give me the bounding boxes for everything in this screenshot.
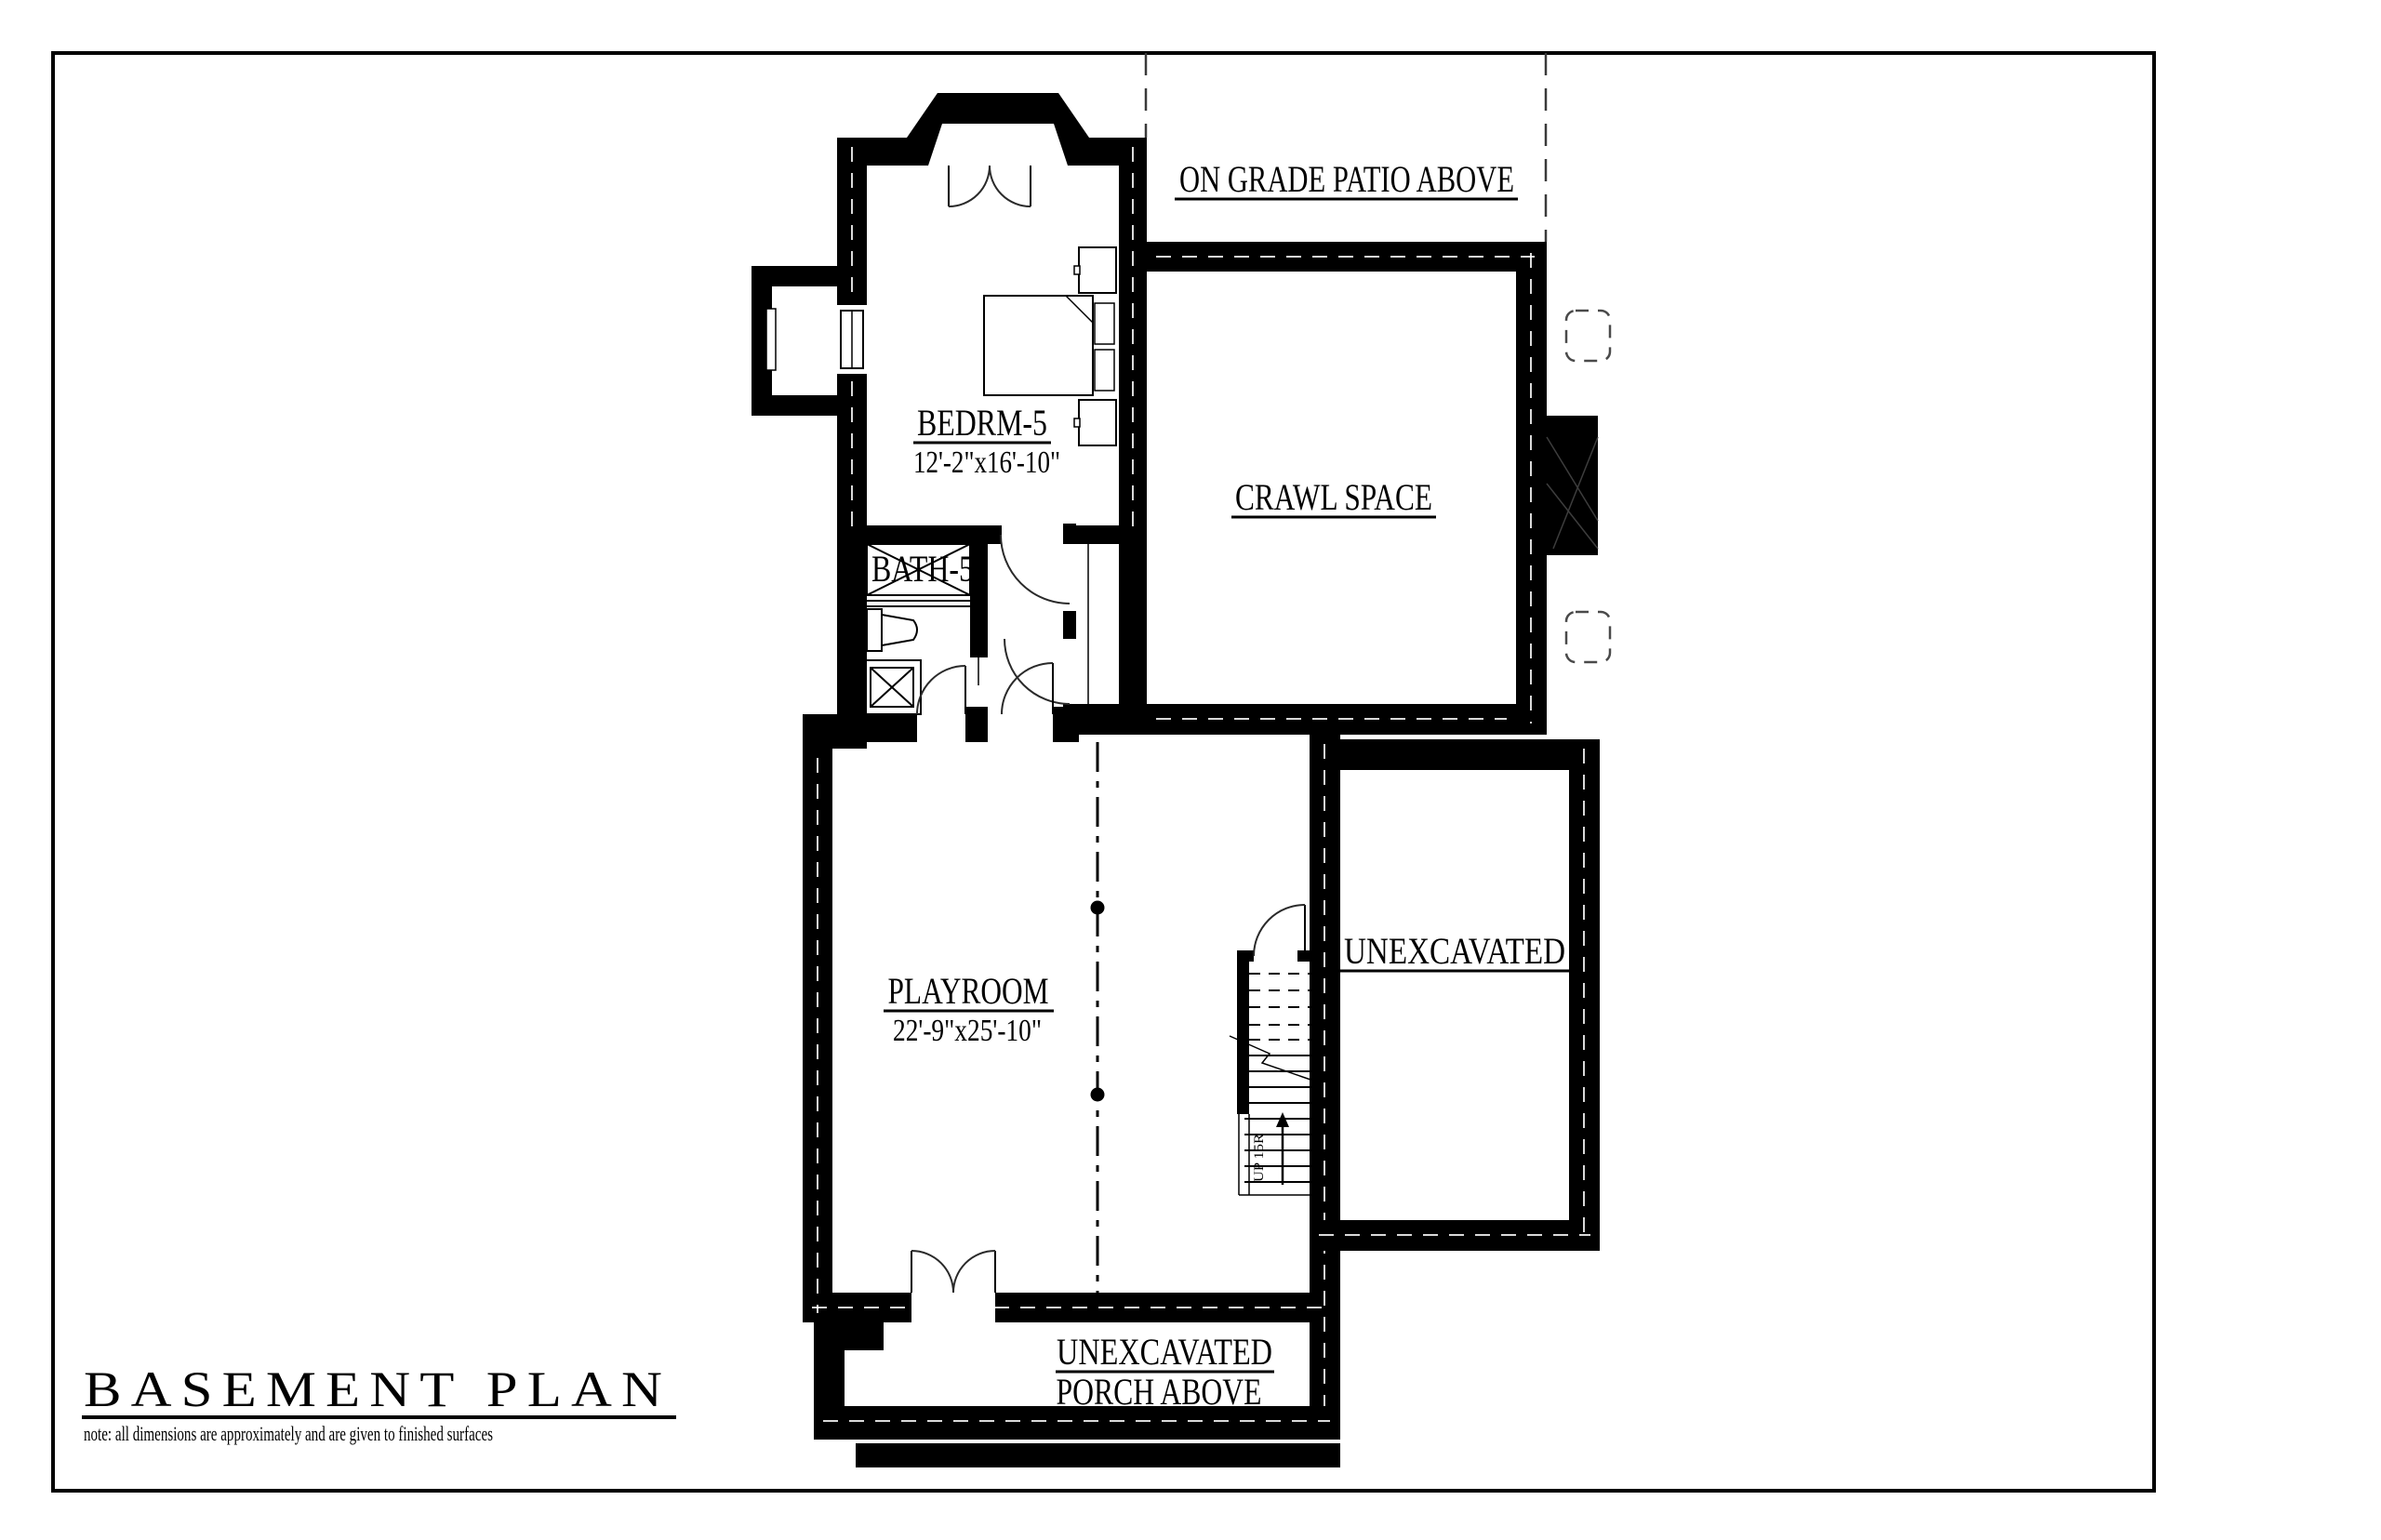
crawl-left-wall [1119, 544, 1147, 711]
stair-left-wall [1237, 950, 1249, 1114]
nightstand [1079, 400, 1116, 445]
door-opening [911, 1293, 995, 1322]
stair-treads-hidden [1249, 974, 1310, 1040]
bath-right-wall [970, 525, 988, 657]
door-swing-arc [1254, 905, 1305, 956]
patio-label: ON GRADE PATIO ABOVE [1179, 158, 1514, 200]
column-post [1091, 1088, 1105, 1102]
stairs: UP 15R [1230, 905, 1316, 1195]
bed-pillow [1095, 350, 1114, 391]
crawl-space-label: CRAWL SPACE [1235, 476, 1432, 518]
door-swing-arc [917, 666, 965, 714]
patio-pier-footing-top [1566, 311, 1610, 361]
door-jamb [1297, 950, 1310, 962]
chimney-mass [1547, 416, 1598, 555]
bed-pillow [1095, 303, 1114, 344]
door-jamb [1053, 707, 1079, 742]
unexcavated-top-wall [1340, 739, 1600, 770]
bedroom: BEDRM-5 12'-2"x16'-10" [752, 93, 1147, 544]
hall [1001, 524, 1088, 742]
chimney [1547, 416, 1598, 555]
toilet-bowl [882, 615, 917, 645]
porch: UNEXCAVATED PORCH ABOVE [814, 1322, 1340, 1467]
drawing-sheet: ON GRADE PATIO ABOVE [0, 0, 2381, 1540]
porch-label-line2: PORCH ABOVE [1057, 1371, 1262, 1413]
bedroom-door-opening [1002, 525, 1063, 544]
playroom-label: PLAYROOM [888, 970, 1049, 1012]
nightstand [1079, 247, 1116, 293]
title-block: BASEMENT PLAN note: all dimensions are a… [82, 1361, 676, 1445]
bath: BATH-5 [803, 525, 988, 742]
door-jamb [1237, 950, 1254, 962]
toilet [867, 609, 917, 651]
door-jamb [965, 707, 988, 742]
playroom-french-doors [911, 1251, 995, 1293]
door-swing-arc [1004, 639, 1070, 704]
door-jamb [1063, 524, 1076, 544]
bed [984, 296, 1093, 395]
porch-label-line1: UNEXCAVATED [1057, 1331, 1272, 1373]
wall-step-corner [803, 716, 867, 749]
nightstand-knob [1074, 266, 1080, 274]
door-swing-arc [1001, 535, 1070, 604]
nightstand-knob [1074, 418, 1080, 427]
crawl-space: CRAWL SPACE [1076, 242, 1598, 735]
stair-direction-label: UP 15R [1252, 1134, 1267, 1182]
porch-step [845, 1322, 884, 1350]
playroom-dimensions: 22'-9"x25'-10" [893, 1014, 1042, 1048]
sheet-title: BASEMENT PLAN [84, 1361, 672, 1417]
porch-wall-gap [856, 1440, 1340, 1443]
bath-label: BATH-5 [871, 548, 974, 590]
window-well-interior [772, 286, 837, 395]
basement-plan-drawing: ON GRADE PATIO ABOVE [0, 0, 2381, 1540]
shower [863, 660, 921, 714]
door-jamb [1063, 611, 1076, 639]
column-post [1091, 901, 1105, 915]
unexcavated-label: UNEXCAVATED [1344, 930, 1565, 972]
bedroom-label: BEDRM-5 [917, 402, 1047, 444]
bedroom-dimensions: 12'-2"x16'-10" [913, 445, 1060, 480]
porch-footing-band [856, 1443, 1340, 1467]
patio-pier-footing-bottom [1566, 612, 1610, 662]
toilet-tank [867, 609, 882, 651]
door-swing-arc [911, 1251, 953, 1293]
sheet-note: note: all dimensions are approximately a… [84, 1422, 493, 1445]
door-swing-arc [953, 1251, 995, 1293]
window-well-window [766, 309, 776, 370]
unexcavated: UNEXCAVATED [1310, 739, 1600, 1251]
